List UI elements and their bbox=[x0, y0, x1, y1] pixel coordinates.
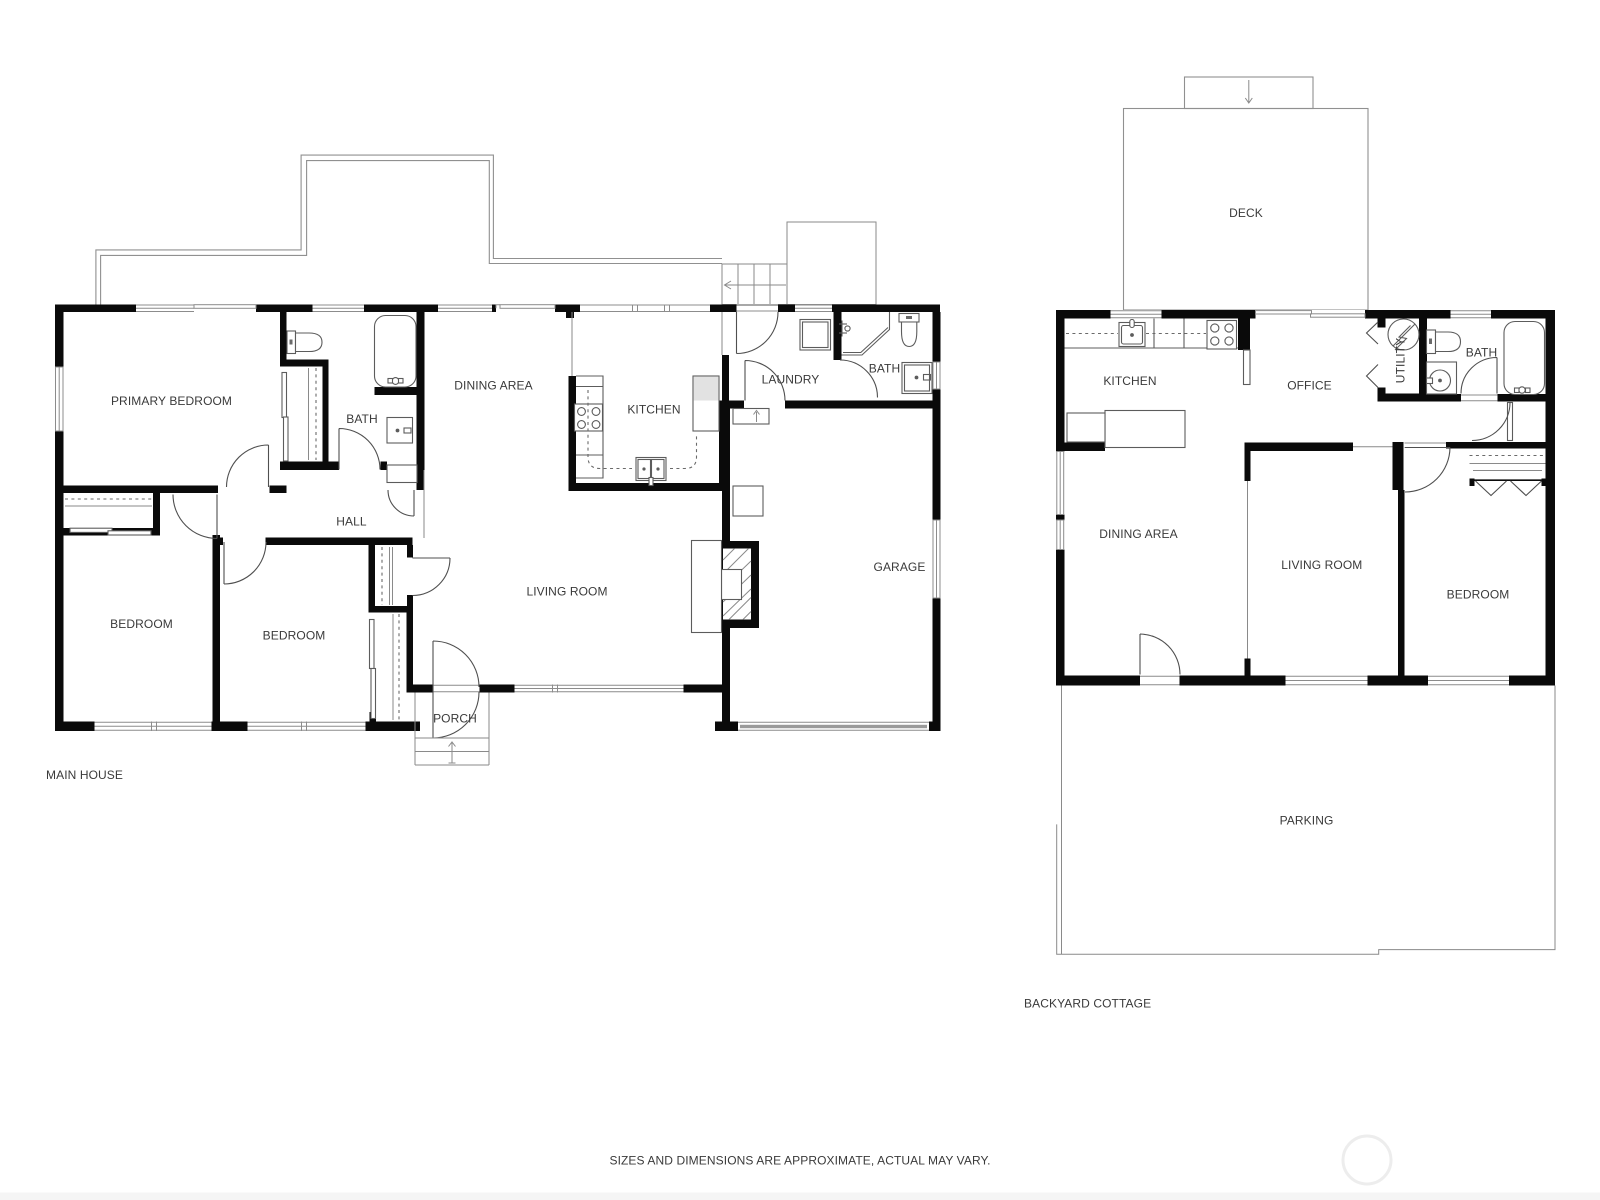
svg-text:GARAGE: GARAGE bbox=[874, 560, 926, 574]
svg-text:HALL: HALL bbox=[336, 515, 367, 529]
svg-text:BATH: BATH bbox=[869, 362, 901, 376]
svg-text:PORCH: PORCH bbox=[433, 712, 477, 726]
svg-text:LIVING ROOM: LIVING ROOM bbox=[1281, 558, 1362, 572]
svg-text:BEDROOM: BEDROOM bbox=[110, 617, 173, 631]
svg-text:PRIMARY BEDROOM: PRIMARY BEDROOM bbox=[111, 394, 232, 408]
svg-text:DINING AREA: DINING AREA bbox=[454, 379, 532, 393]
svg-text:BACKYARD COTTAGE: BACKYARD COTTAGE bbox=[1024, 997, 1151, 1011]
svg-text:BEDROOM: BEDROOM bbox=[1447, 587, 1510, 601]
svg-text:DINING AREA: DINING AREA bbox=[1099, 527, 1177, 541]
svg-text:LAUNDRY: LAUNDRY bbox=[762, 373, 820, 387]
svg-text:SIZES AND DIMENSIONS ARE APPRO: SIZES AND DIMENSIONS ARE APPROXIMATE, AC… bbox=[609, 1154, 990, 1168]
svg-text:BATH: BATH bbox=[1466, 346, 1498, 360]
svg-text:PARKING: PARKING bbox=[1280, 813, 1334, 827]
svg-text:BEDROOM: BEDROOM bbox=[263, 629, 326, 643]
svg-text:DECK: DECK bbox=[1229, 206, 1263, 220]
svg-text:MAIN HOUSE: MAIN HOUSE bbox=[46, 768, 123, 782]
svg-text:UTILITY: UTILITY bbox=[1394, 338, 1408, 383]
svg-text:BATH: BATH bbox=[346, 412, 378, 426]
svg-text:LIVING ROOM: LIVING ROOM bbox=[526, 585, 607, 599]
svg-text:KITCHEN: KITCHEN bbox=[627, 403, 680, 417]
svg-text:KITCHEN: KITCHEN bbox=[1103, 374, 1156, 388]
svg-text:OFFICE: OFFICE bbox=[1287, 379, 1332, 393]
